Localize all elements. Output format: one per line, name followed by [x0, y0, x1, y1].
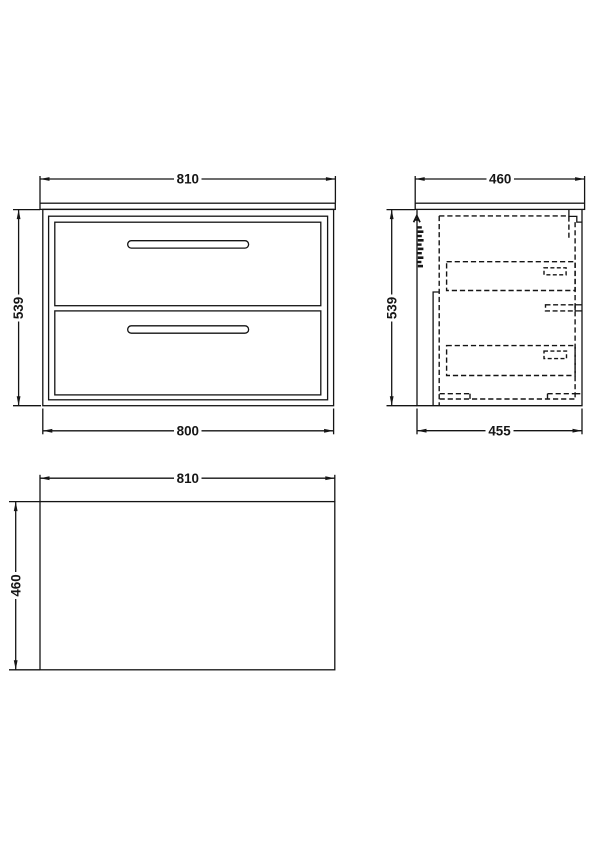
svg-text:800: 800	[177, 423, 199, 438]
svg-text:810: 810	[177, 172, 199, 187]
svg-text:460: 460	[8, 574, 23, 596]
svg-text:460: 460	[489, 172, 511, 187]
svg-text:455: 455	[488, 423, 511, 438]
svg-text:539: 539	[384, 297, 399, 319]
svg-text:539: 539	[11, 297, 26, 319]
svg-text:810: 810	[177, 471, 199, 486]
